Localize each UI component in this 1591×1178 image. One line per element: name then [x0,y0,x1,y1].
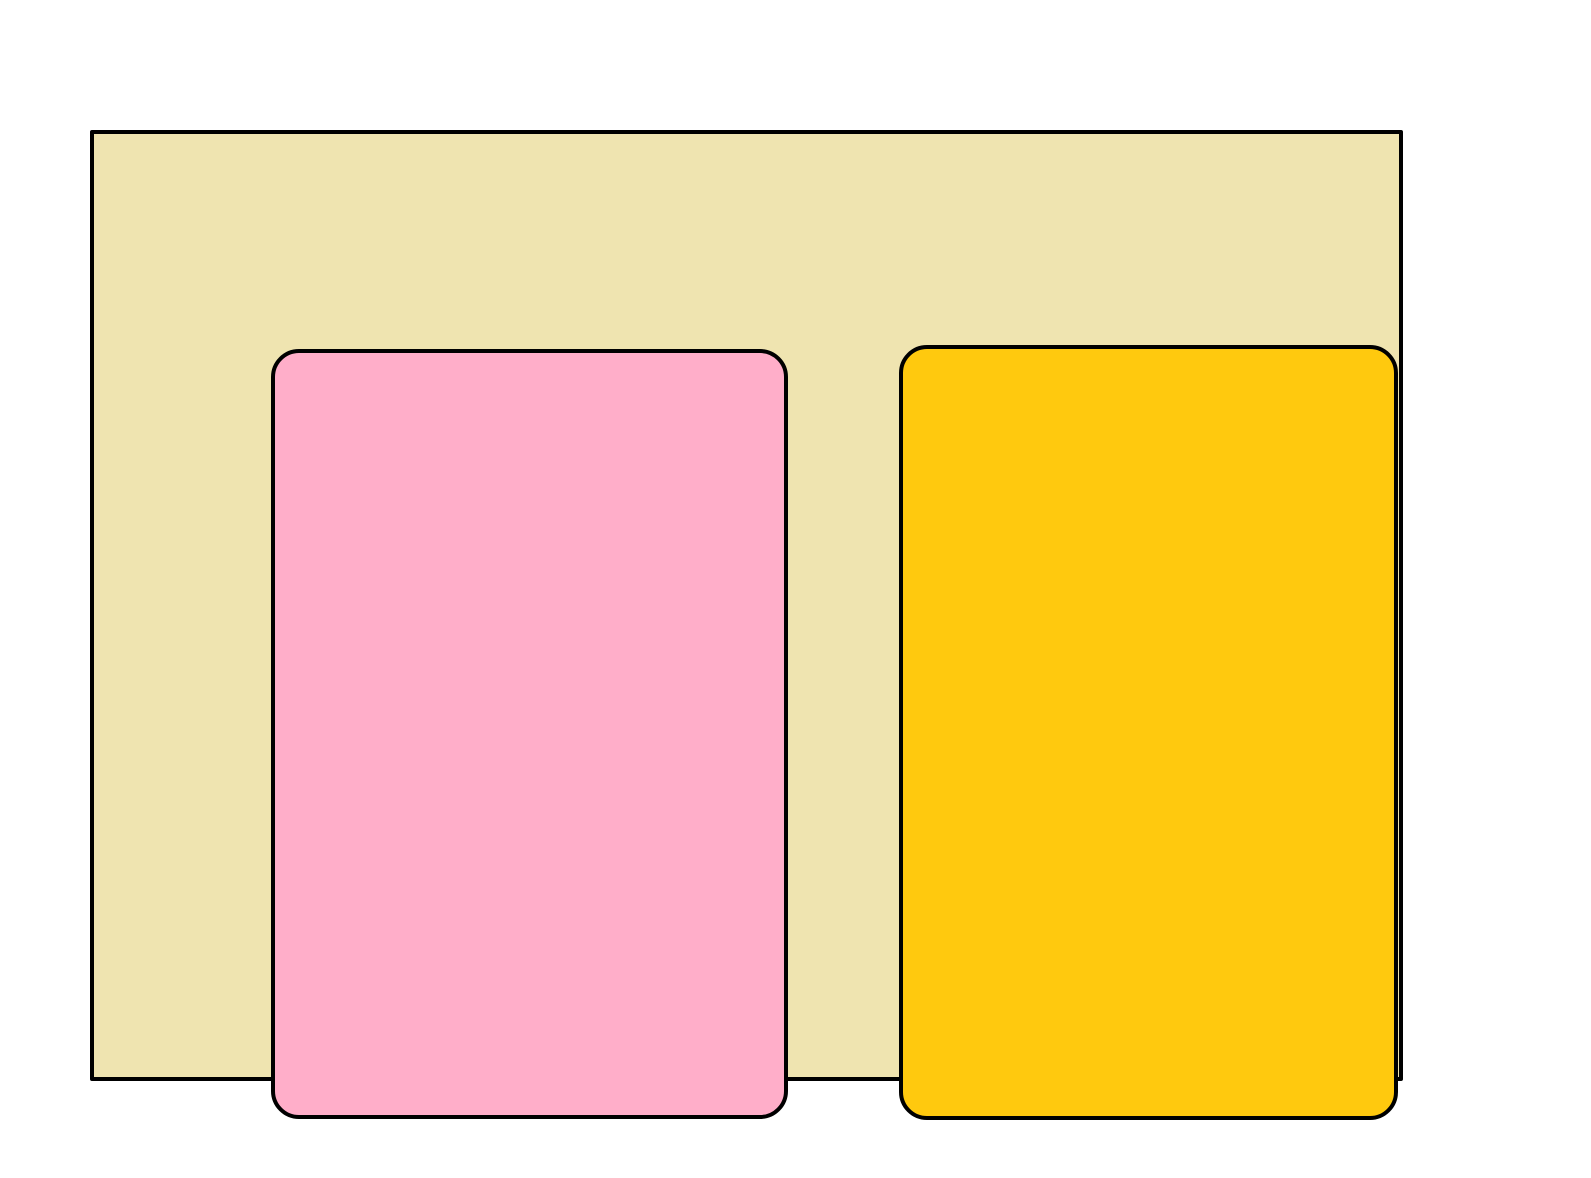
outer-frame-rectangle [90,130,1403,1081]
pink-rounded-rectangle [271,349,788,1119]
drawing-canvas [0,0,1591,1178]
yellow-rounded-rectangle [899,345,1398,1120]
